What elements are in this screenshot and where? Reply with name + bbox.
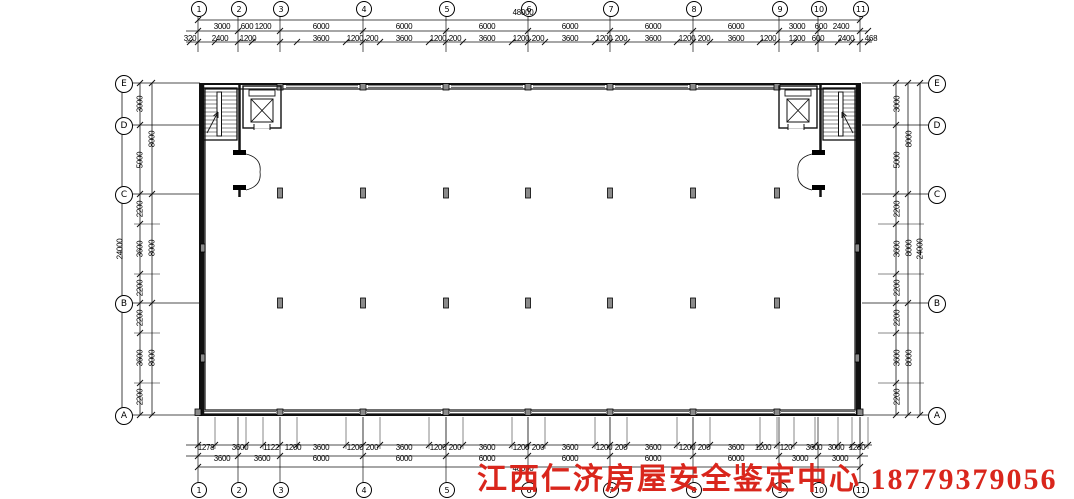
dim-label: 6000 (645, 22, 662, 31)
dim-label: 1200 (513, 443, 530, 452)
dim-label: 6000 (728, 22, 745, 31)
dim-label: 600 (241, 22, 253, 31)
dim-label: 2400 (212, 34, 229, 43)
dim-label: 1200 (596, 443, 613, 452)
dim-label: 200 (615, 443, 627, 452)
dim-label: 200 (532, 443, 544, 452)
grid-axis-bottom-2: 2 (231, 482, 247, 498)
dim-label: 5000 (136, 152, 145, 169)
dim-label: 1278 (198, 443, 215, 452)
floor-plan-canvas: 12345678910111234567891011EDCBAEDCBA 480… (0, 0, 1074, 499)
dim-label: 1200 (430, 34, 447, 43)
grid-axis-top-11: 11 (853, 1, 869, 17)
dim-label: 1200 (679, 34, 696, 43)
dim-label: 2200 (893, 389, 902, 406)
grid-axis-top-7: 7 (603, 1, 619, 17)
dim-label: 2200 (893, 310, 902, 327)
dim-label: 1200 (347, 34, 364, 43)
dim-label: 3600 (313, 34, 330, 43)
dim-label: 2200 (136, 389, 145, 406)
dim-label: 6000 (479, 454, 496, 463)
dim-label: 200 (698, 34, 710, 43)
dim-label: 24000 (916, 239, 925, 260)
dim-label: 3600 (645, 443, 662, 452)
grid-axis-top-5: 5 (439, 1, 455, 17)
grid-axis-top-2: 2 (231, 1, 247, 17)
dim-label: 600 (815, 22, 827, 31)
dim-label: 3600 (136, 350, 145, 367)
dim-label: 200 (366, 443, 378, 452)
dim-label: 2200 (893, 201, 902, 218)
grid-axis-left-D: D (115, 117, 133, 135)
dim-label: 8000 (905, 131, 914, 148)
grid-axis-left-A: A (115, 407, 133, 425)
dim-label: 6000 (479, 22, 496, 31)
dim-label: 3600 (313, 443, 330, 452)
dim-label: 200 (698, 443, 710, 452)
dim-label: 1200 (755, 443, 772, 452)
dim-label: 3600 (396, 34, 413, 43)
dim-label: 48000 (513, 8, 534, 17)
dim-label: 3000 (792, 454, 809, 463)
grid-axis-right-E: E (928, 75, 946, 93)
dim-label: 1200 (513, 34, 530, 43)
dim-label: 2200 (136, 201, 145, 218)
dim-label: 1200 (430, 443, 447, 452)
dim-label: 3000 (828, 443, 845, 452)
dim-label: 6000 (562, 22, 579, 31)
dim-label: 320 (184, 34, 196, 43)
grid-axis-left-B: B (115, 295, 133, 313)
dim-label: 1200 (347, 443, 364, 452)
dim-label: 3600 (479, 443, 496, 452)
dim-label: 3000 (832, 454, 849, 463)
grid-axis-top-10: 10 (811, 1, 827, 17)
dim-label: 8000 (148, 240, 157, 257)
watermark-text: 江西仁济房屋安全鉴定中心 18779379056 (477, 463, 1058, 497)
grid-axis-left-C: C (115, 186, 133, 204)
dim-label: 200 (366, 34, 378, 43)
dim-label: 3600 (645, 34, 662, 43)
dim-label: 3600 (893, 350, 902, 367)
dim-label: 3600 (232, 443, 249, 452)
dim-label: 3600 (728, 34, 745, 43)
dim-label: 1122 (263, 443, 279, 452)
dim-label: 3000 (789, 22, 806, 31)
grid-axis-top-4: 4 (356, 1, 372, 17)
dim-label: 3600 (479, 34, 496, 43)
dim-label: 1200 (240, 34, 257, 43)
dim-label: 1200 (760, 34, 777, 43)
grid-axis-bottom-4: 4 (356, 482, 372, 498)
dim-label: 6000 (562, 454, 579, 463)
dim-label: 6000 (645, 454, 662, 463)
dim-label: 3600 (893, 241, 902, 258)
dim-label: 3600 (728, 443, 745, 452)
dim-label: 120 (780, 443, 792, 452)
dim-label: 1200 (255, 22, 272, 31)
dim-label: 3600 (254, 454, 271, 463)
dim-label: 3600 (562, 443, 579, 452)
dim-label: 6000 (396, 22, 413, 31)
grid-axis-bottom-3: 3 (273, 482, 289, 498)
dim-label: 24000 (116, 239, 125, 260)
dim-label: 1200 (789, 34, 806, 43)
dim-label: 600 (812, 34, 824, 43)
dim-label: 3000 (136, 96, 145, 113)
dim-label: 2200 (136, 280, 145, 297)
dim-label: 200 (449, 34, 461, 43)
dim-label: 1280 (849, 443, 866, 452)
dim-label: 1200 (285, 443, 302, 452)
dim-label: 6000 (396, 454, 413, 463)
dim-label: 2200 (136, 310, 145, 327)
dim-label: 200 (532, 34, 544, 43)
grid-axis-top-1: 1 (191, 1, 207, 17)
dim-label: 1200 (596, 34, 613, 43)
dim-label: 8000 (905, 240, 914, 257)
dim-label: 2200 (893, 280, 902, 297)
dim-label: 6000 (728, 454, 745, 463)
grid-axis-bottom-5: 5 (439, 482, 455, 498)
dim-label: 1200 (679, 443, 696, 452)
dim-label: 8000 (905, 350, 914, 367)
dim-label: 8000 (148, 350, 157, 367)
dim-label: 200 (449, 443, 461, 452)
dim-label: 6000 (313, 22, 330, 31)
grid-axis-left-E: E (115, 75, 133, 93)
dim-label: 3600 (214, 454, 231, 463)
grid-axis-top-8: 8 (686, 1, 702, 17)
dim-label: 3600 (396, 443, 413, 452)
dim-label: 3600 (136, 241, 145, 258)
grid-axis-right-B: B (928, 295, 946, 313)
grid-axis-top-9: 9 (772, 1, 788, 17)
dim-label: 2400 (838, 34, 855, 43)
dim-label: 3600 (562, 34, 579, 43)
dim-label: 5000 (893, 152, 902, 169)
grid-axis-right-A: A (928, 407, 946, 425)
dim-label: 3000 (893, 96, 902, 113)
dim-label: 3000 (214, 22, 231, 31)
dim-label: 200 (615, 34, 627, 43)
grid-axis-bottom-1: 1 (191, 482, 207, 498)
grid-axis-top-3: 3 (273, 1, 289, 17)
dim-label: 6000 (313, 454, 330, 463)
grid-axis-right-D: D (928, 117, 946, 135)
dim-label: 8000 (148, 131, 157, 148)
dim-label: 468 (865, 34, 877, 43)
dim-label: 2400 (833, 22, 850, 31)
grid-axis-right-C: C (928, 186, 946, 204)
dim-label: 3600 (806, 443, 823, 452)
